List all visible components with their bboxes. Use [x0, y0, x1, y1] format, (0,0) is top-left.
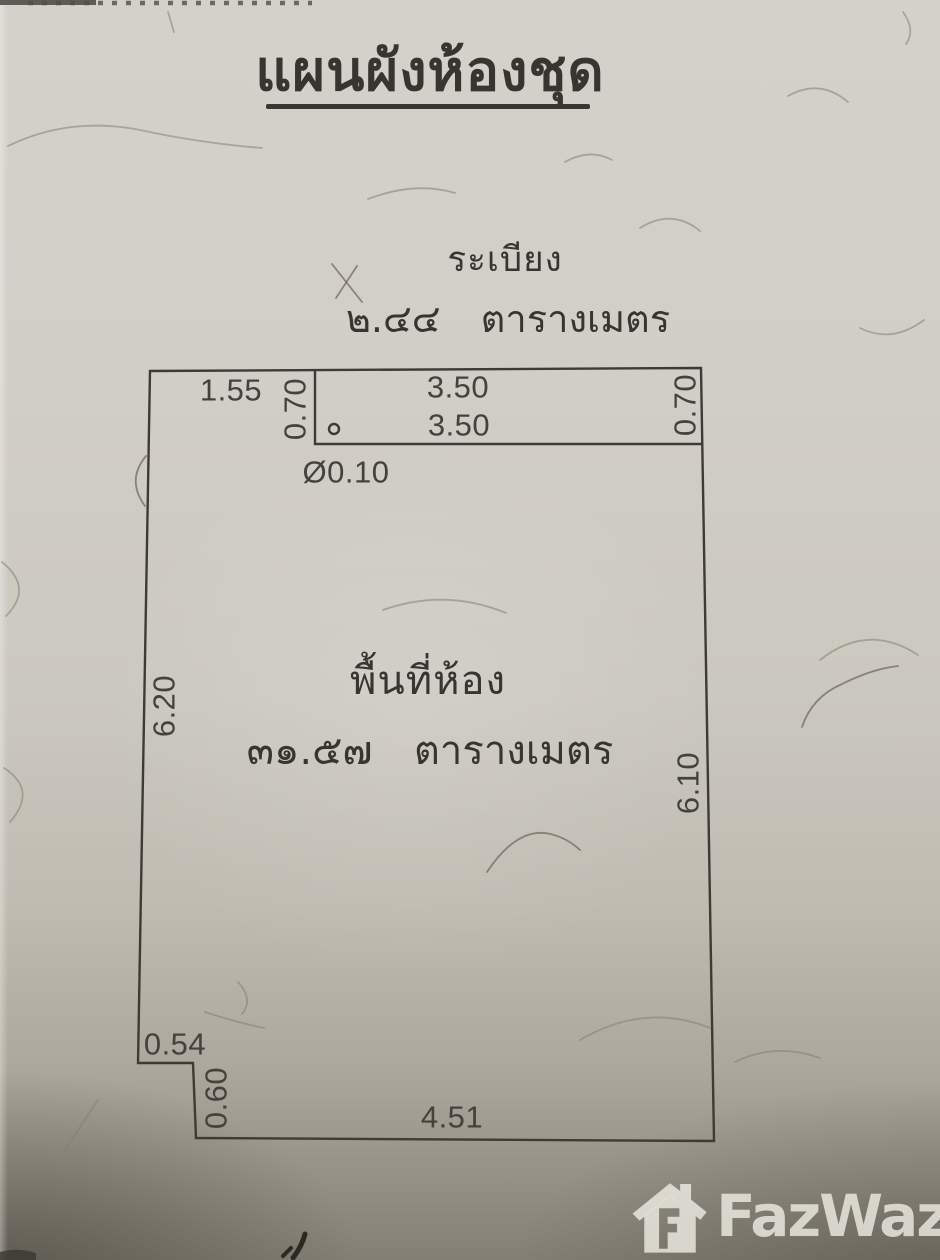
floor-plan-photo: 1.55 0.70 3.50 3.50 0.70 Ø0.10 6.20 6.10…: [0, 0, 940, 1260]
cutoff-stroke: [283, 1248, 291, 1256]
hair-artifact: [580, 1017, 710, 1040]
balcony-label: ระเบียง: [355, 232, 655, 287]
hair-artifact: [168, 12, 174, 32]
dim-notch-width: 0.54: [144, 1027, 206, 1062]
hair-artifact: [62, 1100, 98, 1156]
hair-artifact: [860, 320, 924, 334]
fazwaz-house-icon: [631, 1174, 709, 1258]
hair-artifact: [383, 600, 506, 613]
hair-artifact: [735, 1051, 820, 1062]
hair-artifact: [640, 219, 700, 231]
hair-artifact: [820, 640, 918, 660]
hair-artifact: [136, 456, 146, 506]
hair-artifact: [788, 88, 848, 102]
hair-artifact: [565, 154, 612, 162]
hair-artifact: [802, 666, 898, 727]
dim-wall-right-height: 6.10: [671, 752, 706, 814]
title-underline: [266, 104, 590, 109]
cutoff-blob: [0, 1250, 36, 1260]
floor-plan-drawing: 1.55 0.70 3.50 3.50 0.70 Ø0.10 6.20 6.10…: [0, 0, 940, 1260]
hair-artifact: [903, 12, 910, 44]
dim-balcony-depth-left: 0.70: [278, 378, 313, 440]
cutoff-text-marks: [0, 1234, 305, 1260]
page-title: แผนผังห้องชุด: [230, 26, 630, 115]
column-marker-circle: [329, 424, 339, 434]
dim-top-left-width: 1.55: [200, 373, 262, 408]
room-area-value: ๓๑.๕๗ ตารางเมตร: [230, 718, 630, 782]
hair-artifact: [238, 982, 247, 1014]
dim-wall-left-height: 6.20: [147, 675, 182, 737]
dim-balcony-depth-right: 0.70: [668, 374, 703, 436]
balcony-area-value: ๒.๔๔ ตารางเมตร: [308, 288, 708, 349]
dim-balcony-width-outer: 3.50: [427, 370, 489, 405]
dim-notch-depth: 0.60: [199, 1067, 234, 1129]
scan-edge-strip: [0, 0, 96, 5]
hair-artifact: [8, 126, 262, 148]
fazwaz-watermark: FazWaz: [631, 1174, 940, 1258]
cutoff-stroke: [293, 1234, 305, 1258]
hair-artifact: [2, 562, 19, 616]
hair-artifact: [368, 188, 455, 199]
dim-column-diameter: Ø0.10: [303, 455, 390, 490]
fazwaz-brand-text: FazWaz: [716, 1182, 940, 1250]
room-label: พื้นที่ห้อง: [278, 648, 578, 712]
hair-artifact: [205, 1012, 264, 1028]
balcony-partition-lines: [315, 369, 703, 444]
dim-wall-bottom-width: 4.51: [421, 1100, 483, 1135]
dim-balcony-width-inner: 3.50: [428, 408, 490, 443]
hair-artifact: [4, 768, 23, 822]
hair-artifact: [487, 833, 580, 872]
